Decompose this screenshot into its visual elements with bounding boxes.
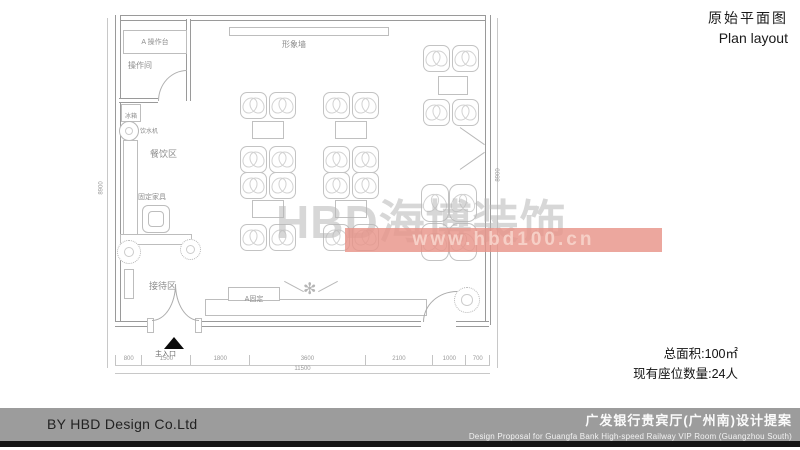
dimension-label: 700	[466, 355, 490, 365]
entrance-arrow-icon	[164, 337, 184, 349]
plant-frond	[318, 281, 338, 292]
fixed-a-box: A固定	[228, 287, 280, 301]
entrance-door-arc-right	[175, 284, 199, 321]
plant-frond	[284, 281, 304, 292]
plant-icon	[454, 287, 480, 313]
dimension-label: 2100	[366, 355, 434, 365]
operation-room-label: 操作间	[128, 60, 152, 71]
fridge: 冰箱	[121, 104, 141, 122]
stats-block: 总面积:100㎡ 现有座位数量:24人	[538, 344, 738, 384]
table	[252, 121, 284, 139]
chair-icon	[323, 92, 350, 119]
seat-count-label: 现有座位数量:24人	[538, 364, 738, 384]
chair-icon	[240, 224, 267, 251]
wall-bottom-mid	[199, 321, 421, 327]
dimension-line-total	[115, 373, 490, 374]
page-title: 原始平面图 Plan layout	[708, 8, 788, 46]
operation-counter-label: A 操作台	[141, 39, 168, 46]
footer-project-zh: 广发银行贵宾厅(广州南)设计提案	[469, 410, 792, 429]
page-title-zh: 原始平面图	[708, 8, 788, 28]
table	[438, 76, 468, 95]
chair-icon	[423, 99, 450, 126]
table	[335, 121, 367, 139]
wall-left	[115, 15, 121, 325]
chair-icon	[240, 92, 267, 119]
fixed-a-label: A固定	[245, 296, 264, 303]
dimension-row-bottom: 800 1500 1800 3600 2100 1000 700	[115, 355, 490, 365]
image-wall	[229, 27, 389, 36]
water-dispenser-label: 饮水机	[140, 126, 158, 135]
stool-plant-icon	[180, 239, 201, 260]
fixed-furniture-chair	[142, 205, 170, 233]
seat-pair	[423, 45, 479, 72]
window-mark	[460, 127, 485, 145]
chair-icon	[452, 45, 479, 72]
operation-room-door-arc	[158, 70, 187, 101]
chair-icon	[423, 45, 450, 72]
operation-room-wall-h	[119, 98, 158, 103]
wall-bottom-left	[115, 321, 148, 327]
entrance-door-arc-left	[152, 284, 176, 321]
dimension-label: 3600	[250, 355, 366, 365]
page-title-en: Plan layout	[708, 30, 788, 46]
dimension-label-left: 8900	[99, 181, 105, 194]
seat-pair	[423, 99, 479, 126]
chair-icon	[323, 146, 350, 173]
narrow-cabinet	[124, 269, 134, 299]
seat-pair	[323, 92, 379, 119]
footer-project-en: Design Proposal for Guangfa Bank High-sp…	[469, 432, 792, 441]
footer-black-strip	[0, 441, 800, 447]
window-mark	[460, 152, 485, 170]
chair-icon	[240, 146, 267, 173]
chair-icon	[240, 172, 267, 199]
seat-pair	[323, 146, 379, 173]
long-counter	[205, 299, 427, 316]
side-counter	[123, 140, 138, 239]
chair-icon	[352, 92, 379, 119]
dimension-label: 1800	[191, 355, 250, 365]
stool-plant-icon	[117, 240, 141, 264]
dimension-line-left	[107, 18, 108, 368]
operation-counter: A 操作台	[123, 30, 187, 54]
water-dispenser-icon	[119, 121, 139, 141]
dimension-label: 1000	[433, 355, 466, 365]
chair-icon	[452, 99, 479, 126]
wall-top	[115, 15, 489, 21]
secondary-door-arc	[423, 291, 457, 322]
plant-icon: ✻	[303, 282, 316, 298]
watermark-band: www.hbd100.cn	[345, 228, 662, 252]
chair-icon	[269, 92, 296, 119]
wall-right	[485, 15, 491, 325]
dimension-label-right: 8900	[496, 168, 502, 181]
wall-bottom-right	[456, 321, 489, 327]
total-area-label: 总面积:100㎡	[538, 344, 738, 364]
dimension-label: 1500	[142, 355, 191, 365]
fixed-furniture-label: 固定家具	[138, 192, 166, 202]
fridge-label: 冰箱	[125, 114, 137, 120]
image-wall-label: 形象墙	[270, 39, 318, 50]
chair-icon	[269, 146, 296, 173]
footer-project: 广发银行贵宾厅(广州南)设计提案 Design Proposal for Gua…	[469, 410, 792, 441]
seat-pair	[240, 146, 296, 173]
watermark-url: www.hbd100.cn	[413, 229, 595, 250]
dining-area-label: 餐饮区	[150, 147, 177, 160]
seat-pair	[240, 92, 296, 119]
dimension-label: 800	[115, 355, 142, 365]
fixed-furniture-chair-inner	[148, 211, 164, 227]
chair-icon	[352, 146, 379, 173]
dimension-total-label: 11500	[115, 366, 490, 372]
footer-company: BY HBD Design Co.Ltd	[47, 416, 197, 432]
